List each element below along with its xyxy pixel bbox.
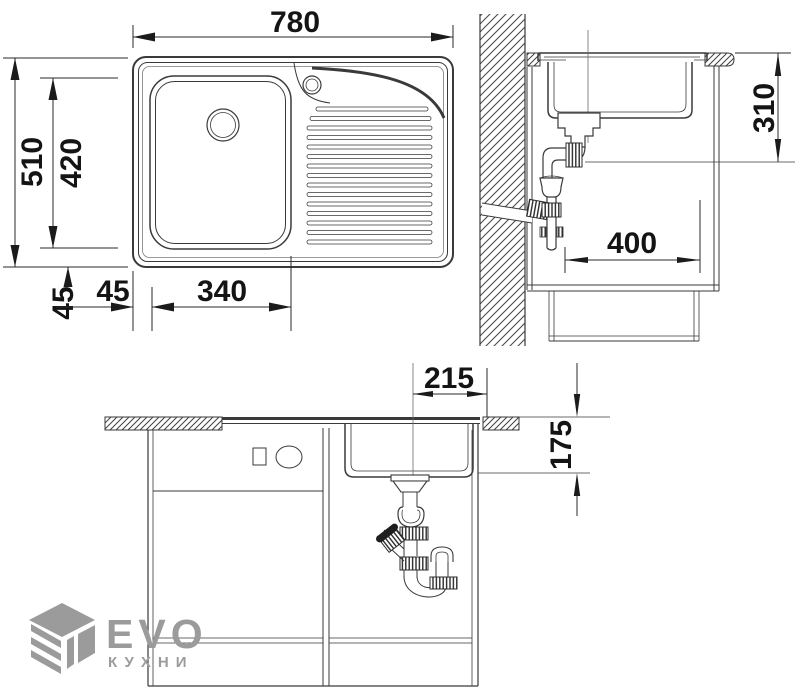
appliance-button [253, 448, 266, 465]
evo-logo-subtitle: КУХНИ [108, 654, 193, 671]
plan-view: 780 510 420 45 45 340 [3, 6, 453, 331]
dimension-310: 310 [735, 53, 791, 162]
dim-label-780: 780 [270, 6, 320, 39]
faucet-hole [303, 76, 321, 94]
trap-bell [540, 178, 563, 197]
slip-joint-cup [398, 507, 424, 527]
rim-corner-curve [312, 68, 444, 118]
dim-label-340: 340 [197, 275, 247, 308]
dim-label-510: 510 [16, 137, 49, 187]
dim-label-45v: 45 [47, 286, 80, 319]
drain-funnel [393, 481, 427, 492]
side-view: 310 400 [480, 14, 795, 346]
sink-bowl [150, 76, 291, 249]
trap-nut-lower [400, 557, 428, 570]
technical-drawing: 780 510 420 45 45 340 [0, 0, 797, 700]
sink-installation-diagram: 780 510 420 45 45 340 [0, 0, 797, 700]
dimension-780: 780 [133, 6, 453, 48]
dimension-175: 175 [545, 363, 580, 516]
drain-hole [207, 109, 239, 141]
evo-logo-text: EVO [106, 611, 208, 657]
dimension-215: 215 [413, 362, 487, 417]
worktop-section [527, 53, 734, 66]
front-siphon-trap [375, 475, 457, 597]
wall-section [480, 14, 525, 346]
bowl-section [548, 30, 692, 147]
worktop-edge-section [705, 53, 734, 66]
drainboard-ridges [307, 107, 432, 244]
dim-label-400: 400 [607, 227, 657, 260]
dim-label-420: 420 [55, 138, 88, 188]
evo-logo: EVO КУХНИ [29, 603, 208, 674]
elbow-nut [566, 143, 582, 167]
hose-collar [430, 577, 457, 589]
trap-nut-upper [400, 527, 428, 540]
dim-label-215: 215 [424, 362, 474, 395]
evo-cube-icon [29, 603, 95, 674]
dim-label-45h: 45 [96, 275, 129, 308]
dimension-400: 400 [565, 200, 700, 273]
bowl-sump-section [558, 113, 600, 147]
appliance-dial [276, 446, 302, 468]
hose-bulb [431, 547, 453, 562]
trap-collar [542, 203, 561, 217]
dim-label-310: 310 [748, 83, 781, 133]
worktop-front [105, 417, 610, 430]
dim-label-175: 175 [545, 420, 578, 470]
dimension-420: 420 [40, 78, 118, 248]
dimension-45-vertical: 45 [47, 267, 80, 320]
sink-outline [133, 57, 453, 267]
